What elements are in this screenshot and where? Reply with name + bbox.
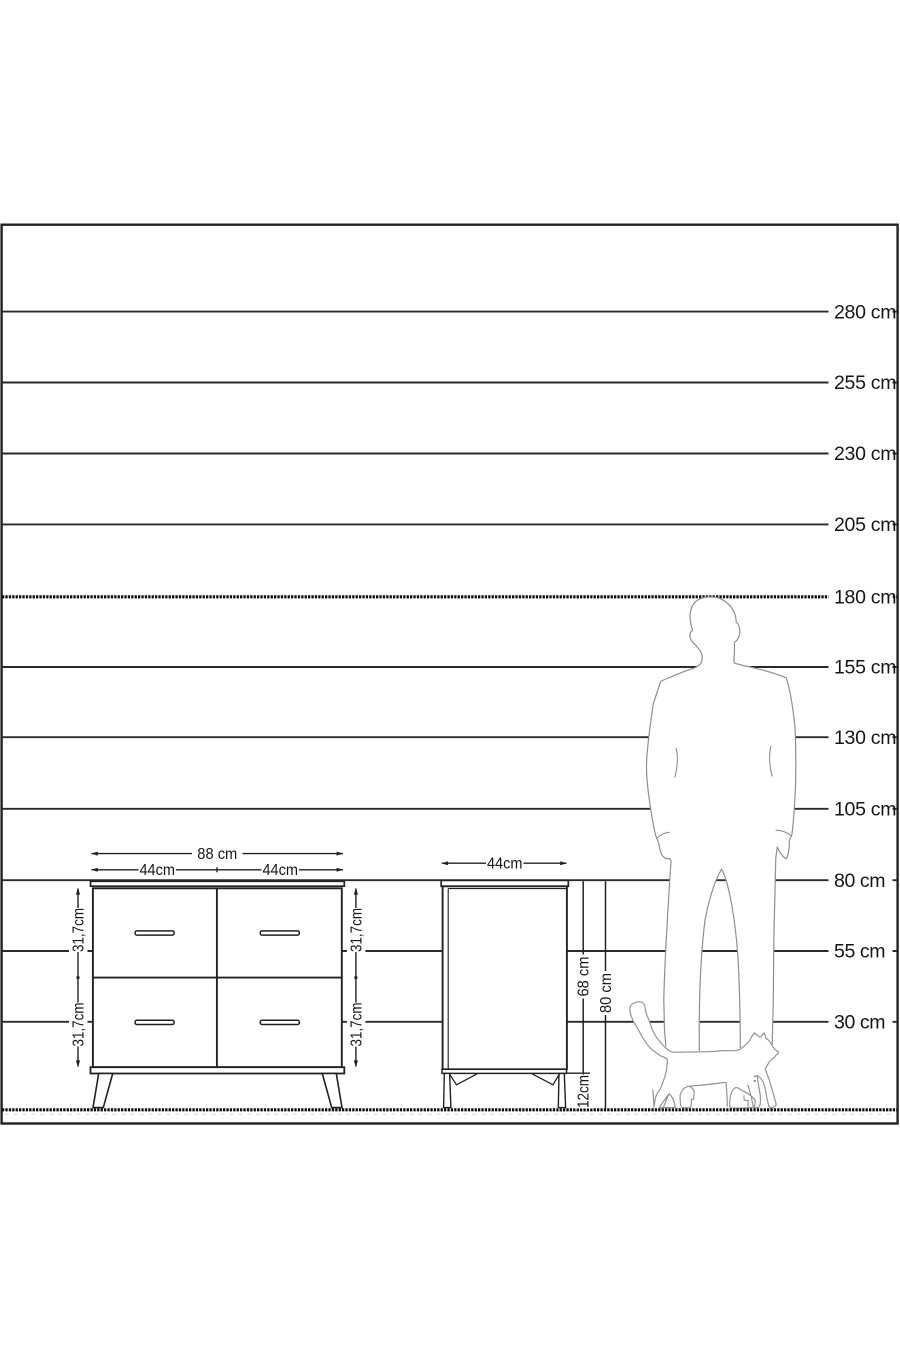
svg-text:31,7cm: 31,7cm	[71, 908, 88, 952]
svg-text:205 cm: 205 cm	[834, 514, 897, 536]
svg-text:155 cm: 155 cm	[834, 657, 897, 679]
svg-text:130 cm: 130 cm	[834, 727, 897, 749]
svg-text:31,7cm: 31,7cm	[71, 1003, 88, 1047]
svg-text:80 cm: 80 cm	[598, 973, 615, 1013]
svg-text:88 cm: 88 cm	[197, 846, 237, 863]
svg-text:230 cm: 230 cm	[834, 443, 897, 465]
svg-text:55 cm: 55 cm	[834, 941, 886, 963]
svg-text:31,7cm: 31,7cm	[348, 908, 365, 952]
svg-text:68 cm: 68 cm	[576, 957, 593, 997]
svg-text:12cm: 12cm	[576, 1075, 593, 1108]
svg-text:30 cm: 30 cm	[834, 1012, 886, 1034]
svg-text:31,7cm: 31,7cm	[348, 1003, 365, 1047]
svg-text:105 cm: 105 cm	[834, 799, 897, 821]
svg-text:280 cm: 280 cm	[834, 301, 897, 323]
svg-text:80 cm: 80 cm	[834, 870, 886, 892]
svg-text:44cm: 44cm	[487, 856, 523, 873]
svg-text:180 cm: 180 cm	[834, 587, 897, 609]
svg-text:255 cm: 255 cm	[834, 372, 897, 394]
svg-text:44cm: 44cm	[262, 862, 298, 879]
svg-text:44cm: 44cm	[139, 862, 175, 879]
